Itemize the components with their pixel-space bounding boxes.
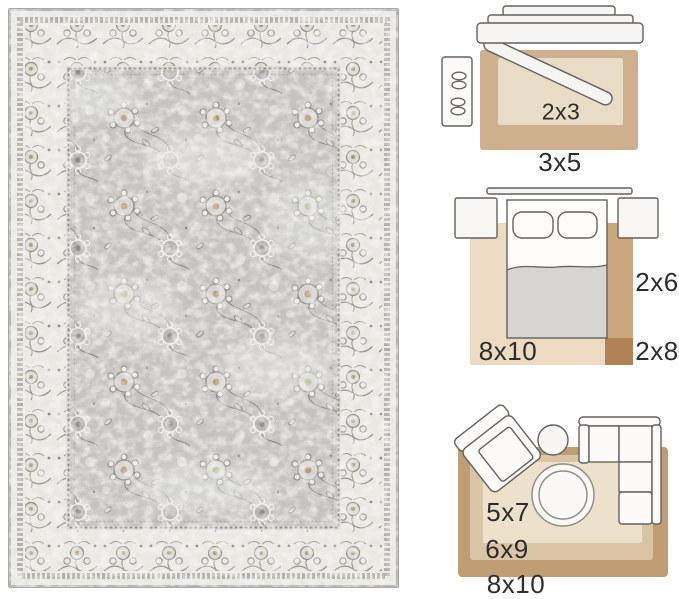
- entryway-size-diagram: 2x3 3x5: [438, 0, 679, 178]
- living-room-size-diagram: 5x7 6x9 8x10: [438, 376, 679, 596]
- rug-size-label-5x7: 5x7: [486, 499, 529, 525]
- runner-2x6-swatch: [605, 223, 633, 338]
- side-table-icon: [538, 425, 568, 455]
- rug-size-label-8x10-living: 8x10: [487, 571, 545, 597]
- product-image: { "rug_photo": { "palette": { "binding":…: [0, 0, 679, 596]
- pillow-icon: [513, 212, 553, 238]
- nightstand-right-icon: [618, 198, 658, 238]
- pillow-icon: [558, 212, 597, 238]
- rug-size-label-2x8: 2x8: [635, 338, 678, 364]
- console-table-icon: [477, 6, 643, 43]
- runner-2x8-swatch: [605, 338, 633, 365]
- rug-size-label-2x6: 2x6: [635, 269, 678, 295]
- rug-size-label-8x10-bedroom: 8x10: [479, 338, 537, 364]
- bed-icon: [507, 200, 607, 338]
- rug-size-label-3x5: 3x5: [538, 149, 581, 175]
- rug-size-label-2x3: 2x3: [542, 101, 581, 124]
- nightstand-left-icon: [455, 198, 497, 238]
- rug-photo: [8, 8, 399, 588]
- coffee-table-icon: [532, 464, 594, 526]
- shoe-cabinet-icon: [442, 57, 472, 126]
- bedroom-size-diagram: 2x6 8x10 2x8: [438, 178, 679, 376]
- rug-grain-overlay-dark: [8, 8, 399, 588]
- headboard-icon: [487, 188, 632, 194]
- blanket: [507, 265, 607, 338]
- rug-size-label-6x9: 6x9: [485, 536, 528, 562]
